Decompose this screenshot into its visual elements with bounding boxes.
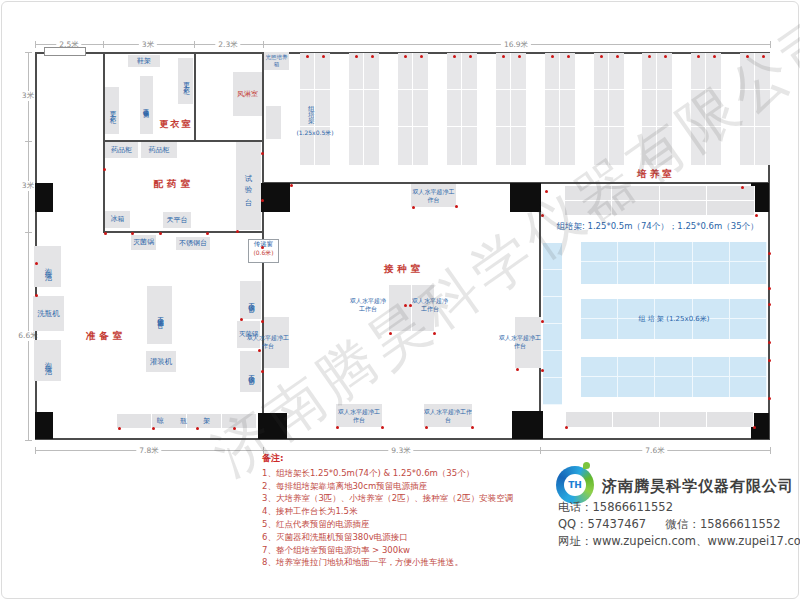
power-socket-dot — [118, 427, 121, 430]
bottle-washer: 洗瓶机 — [33, 296, 64, 331]
light-incubator: 光照培养箱 — [264, 52, 289, 70]
power-socket-dot — [236, 230, 239, 233]
room-label-culture: 培养室 — [622, 168, 690, 181]
dim-tick — [25, 440, 32, 441]
test-bench: 试验台 — [236, 142, 261, 230]
rack-spec-line: 组培架: 1.25*0.5m（74个）；1.25*0.6m（35个） — [545, 221, 770, 232]
soak-pool: 泡瓶池 — [34, 340, 61, 381]
power-socket-dot — [616, 55, 619, 58]
power-socket-dot — [35, 294, 38, 297]
laminar-flow-bench: 双人水平超净工作台 — [411, 184, 456, 207]
shoe-rack: 鞋架 — [128, 55, 160, 67]
culture-rack-column — [691, 53, 721, 165]
phone-label: 电话： — [558, 500, 593, 514]
dim-tick — [194, 41, 195, 48]
laminar-label: 双人水平超净工作台 — [410, 297, 450, 312]
note-item: 8、培养室推拉门地轨和地面一平，方便小推车推送。 — [262, 556, 557, 569]
power-socket-dot — [600, 55, 603, 58]
power-socket-dot — [768, 341, 771, 344]
tissue-rack-blue — [581, 357, 767, 397]
notes-heading: 备注: — [262, 452, 557, 465]
power-socket-dot — [746, 55, 749, 58]
tissue-rack-blue: 组 培 架 (1.25x0.6米) — [581, 299, 767, 339]
power-socket-dot — [453, 55, 456, 58]
power-socket-dot — [541, 320, 544, 323]
laminar-label: 双人水平超净工作台 — [498, 334, 542, 349]
power-socket-dot — [762, 55, 765, 58]
dim-tick — [25, 141, 32, 142]
power-socket-dot — [159, 232, 162, 235]
power-socket-dot — [261, 152, 264, 155]
dim-tick — [263, 41, 264, 48]
locker: 更衣柜 — [178, 58, 193, 104]
qq-value: 57437467 — [588, 517, 647, 531]
power-socket-dot — [516, 368, 519, 371]
logo-leaf-icon — [583, 462, 590, 469]
power-socket-dot — [404, 55, 407, 58]
pillar — [256, 183, 290, 212]
power-socket-dot — [404, 304, 407, 307]
dim-tick — [25, 232, 32, 233]
power-socket-dot — [545, 190, 548, 193]
medicine-cabinet: 药品柜 — [105, 142, 138, 158]
culture-rack-column — [545, 53, 575, 165]
power-socket-dot — [551, 55, 554, 58]
power-socket-dot — [471, 426, 474, 429]
power-socket-dot — [290, 184, 293, 187]
tissue-rack-size-label: (1.25x0.5米) — [288, 129, 342, 137]
laminar-flow-bench: 双人水平超净工作台 — [336, 404, 382, 427]
medicine-cabinet: 药品柜 — [141, 142, 177, 158]
pillar — [512, 411, 543, 439]
note-item: 7、整个组培室预留电源功率 > 300kw — [262, 544, 557, 557]
dim-tick — [35, 447, 36, 454]
dim-tick — [770, 41, 771, 48]
room-label-prep: 准备室 — [72, 330, 140, 343]
equipment-block — [266, 106, 281, 139]
power-socket-dot — [697, 55, 700, 58]
power-socket-dot — [713, 55, 716, 58]
power-socket-dot — [412, 206, 415, 209]
stainless-table: 不锈钢台 — [240, 351, 261, 392]
stainless-table: 不锈钢台 — [240, 281, 261, 319]
web-value: www.zupeicn.com、www.zupei17.com — [593, 534, 800, 548]
company-name: 济南腾昊科学仪器有限公司 — [602, 477, 794, 496]
company-logo: TH — [556, 466, 594, 504]
power-socket-dot — [104, 232, 107, 235]
culture-rack-row — [565, 186, 755, 215]
locker: 更衣柜 — [105, 87, 119, 134]
dim-label: 7.8米 — [136, 446, 161, 456]
power-socket-dot — [648, 55, 651, 58]
dim-tick — [25, 52, 32, 53]
power-socket-dot — [261, 370, 264, 373]
pillar — [35, 412, 53, 439]
note-item: 2、每排组培架靠墙离地30cm预留电源插座 — [262, 480, 557, 493]
tissue-rack-label: 组培架 — [307, 90, 315, 128]
dim-label: 7.6米 — [642, 446, 667, 456]
note-item: 6、灭菌器和洗瓶机预留380v电源接口 — [262, 531, 557, 544]
power-socket-dot — [196, 427, 199, 430]
power-socket-dot — [103, 168, 106, 171]
dim-line-left — [28, 52, 29, 440]
note-item: 3、大培养室（3匹）、小培养室（2匹）、接种室（2匹）安装空调 — [262, 492, 557, 505]
room-label-dispensing: 配药室 — [140, 178, 208, 191]
power-socket-dot — [565, 426, 568, 429]
air-shower: 风淋室 — [233, 72, 262, 116]
dim-tick — [103, 41, 104, 48]
culture-rack-row — [566, 412, 754, 427]
dim-label: 2.3米 — [215, 40, 240, 50]
culture-rack-column — [349, 53, 379, 165]
power-socket-dot — [768, 397, 771, 400]
power-socket-dot — [741, 186, 744, 189]
power-socket-dot — [152, 427, 155, 430]
power-socket-dot — [664, 55, 667, 58]
power-socket-dot — [409, 304, 412, 307]
power-socket-dot — [753, 426, 756, 429]
logo-monogram: TH — [564, 474, 586, 496]
filling-machine: 灌装机 — [146, 351, 176, 372]
power-socket-dot — [518, 55, 521, 58]
wechat-label: 微信： — [665, 517, 700, 531]
culture-rack-column — [447, 53, 477, 165]
power-socket-dot — [768, 252, 771, 255]
laminar-flow-bench: 双人水平超净工作台 — [424, 404, 472, 427]
power-socket-dot — [381, 426, 384, 429]
wall — [103, 231, 264, 233]
power-socket-dot — [502, 55, 505, 58]
power-socket-dot — [755, 214, 758, 217]
power-socket-dot — [206, 232, 209, 235]
website-line: 网址：www.zupeicn.com、www.zupei17.com — [558, 534, 800, 549]
power-socket-dot — [768, 287, 771, 290]
power-socket-dot — [541, 369, 544, 372]
sterilizer: 灭菌锅 — [131, 235, 156, 250]
power-socket-dot — [768, 359, 771, 362]
culture-rack-column — [594, 53, 624, 165]
power-socket-dot — [336, 426, 339, 429]
qq-wechat-line: QQ：57437467 微信：15866611552 — [558, 517, 780, 532]
culture-rack-column — [496, 53, 526, 165]
power-socket-dot — [261, 246, 264, 249]
culture-rack-column — [642, 53, 672, 165]
power-socket-dot — [261, 320, 264, 323]
power-socket-dot — [425, 426, 428, 429]
bottle-drying-rack: 晾 瓶 架 — [117, 414, 257, 428]
notes-block: 备注: 1、组培架长1.25*0.5m(74个) & 1.25*0.6m（35个… — [262, 452, 557, 569]
web-label: 网址： — [558, 534, 593, 548]
power-socket-dot — [322, 55, 325, 58]
pillar — [510, 183, 541, 212]
laminar-label: 双人水平超净工作台 — [246, 334, 290, 349]
laminar-label: 双人水平超净工作台 — [348, 297, 388, 312]
power-socket-dot — [233, 427, 236, 430]
power-socket-dot — [768, 303, 771, 306]
power-socket-dot — [455, 205, 458, 208]
power-socket-dot — [541, 214, 544, 217]
balance-table: 天平台 — [163, 212, 191, 228]
phone-value: 15866611552 — [593, 500, 673, 514]
power-socket-dot — [131, 232, 134, 235]
power-socket-dot — [35, 262, 38, 265]
fridge: 冰箱 — [105, 211, 130, 228]
room-label-changing: 更衣室 — [150, 118, 202, 131]
phone-line: 电话：15866611552 — [558, 500, 673, 515]
soak-pool: 泡瓶池 — [34, 246, 61, 287]
culture-rack-column — [398, 53, 428, 165]
room-label-inoculation: 接种室 — [370, 263, 438, 276]
culture-rack-column — [740, 53, 770, 165]
power-socket-dot — [371, 55, 374, 58]
power-socket-dot — [261, 199, 264, 202]
note-item: 1、组培架长1.25*0.5m(74个) & 1.25*0.6m（35个） — [262, 467, 557, 480]
power-socket-dot — [240, 318, 243, 321]
power-socket-dot — [420, 55, 423, 58]
dim-label: 16.9米 — [501, 40, 531, 50]
wall — [539, 182, 541, 440]
tissue-rack-blue — [581, 242, 767, 284]
pillar — [258, 413, 287, 439]
power-socket-dot — [469, 55, 472, 58]
note-item: 4、接种工作台长为1.5米 — [262, 505, 557, 518]
qq-label: QQ： — [558, 517, 588, 531]
power-socket-dot — [306, 55, 309, 58]
entry-door — [44, 47, 86, 56]
pass-window: 传递窗 (0.6米) — [248, 239, 279, 263]
dim-tick — [770, 447, 771, 454]
tissue-rack-blue — [543, 243, 562, 405]
laminar-flow-bench — [389, 285, 411, 331]
power-socket-dot — [258, 349, 261, 352]
dim-label: 3米 — [139, 40, 157, 50]
stainless-table: 不锈钢台 — [176, 237, 210, 250]
power-socket-dot — [433, 332, 436, 335]
power-socket-dot — [355, 55, 358, 58]
power-socket-dot — [567, 55, 570, 58]
dim-tick — [35, 41, 36, 48]
stainless-workbench: 不锈钢工作台 — [147, 286, 172, 344]
power-socket-dot — [389, 332, 392, 335]
pillar — [35, 183, 53, 212]
wechat-value: 15866611552 — [700, 517, 780, 531]
note-item: 5、红点代表预留的电源插座 — [262, 518, 557, 531]
